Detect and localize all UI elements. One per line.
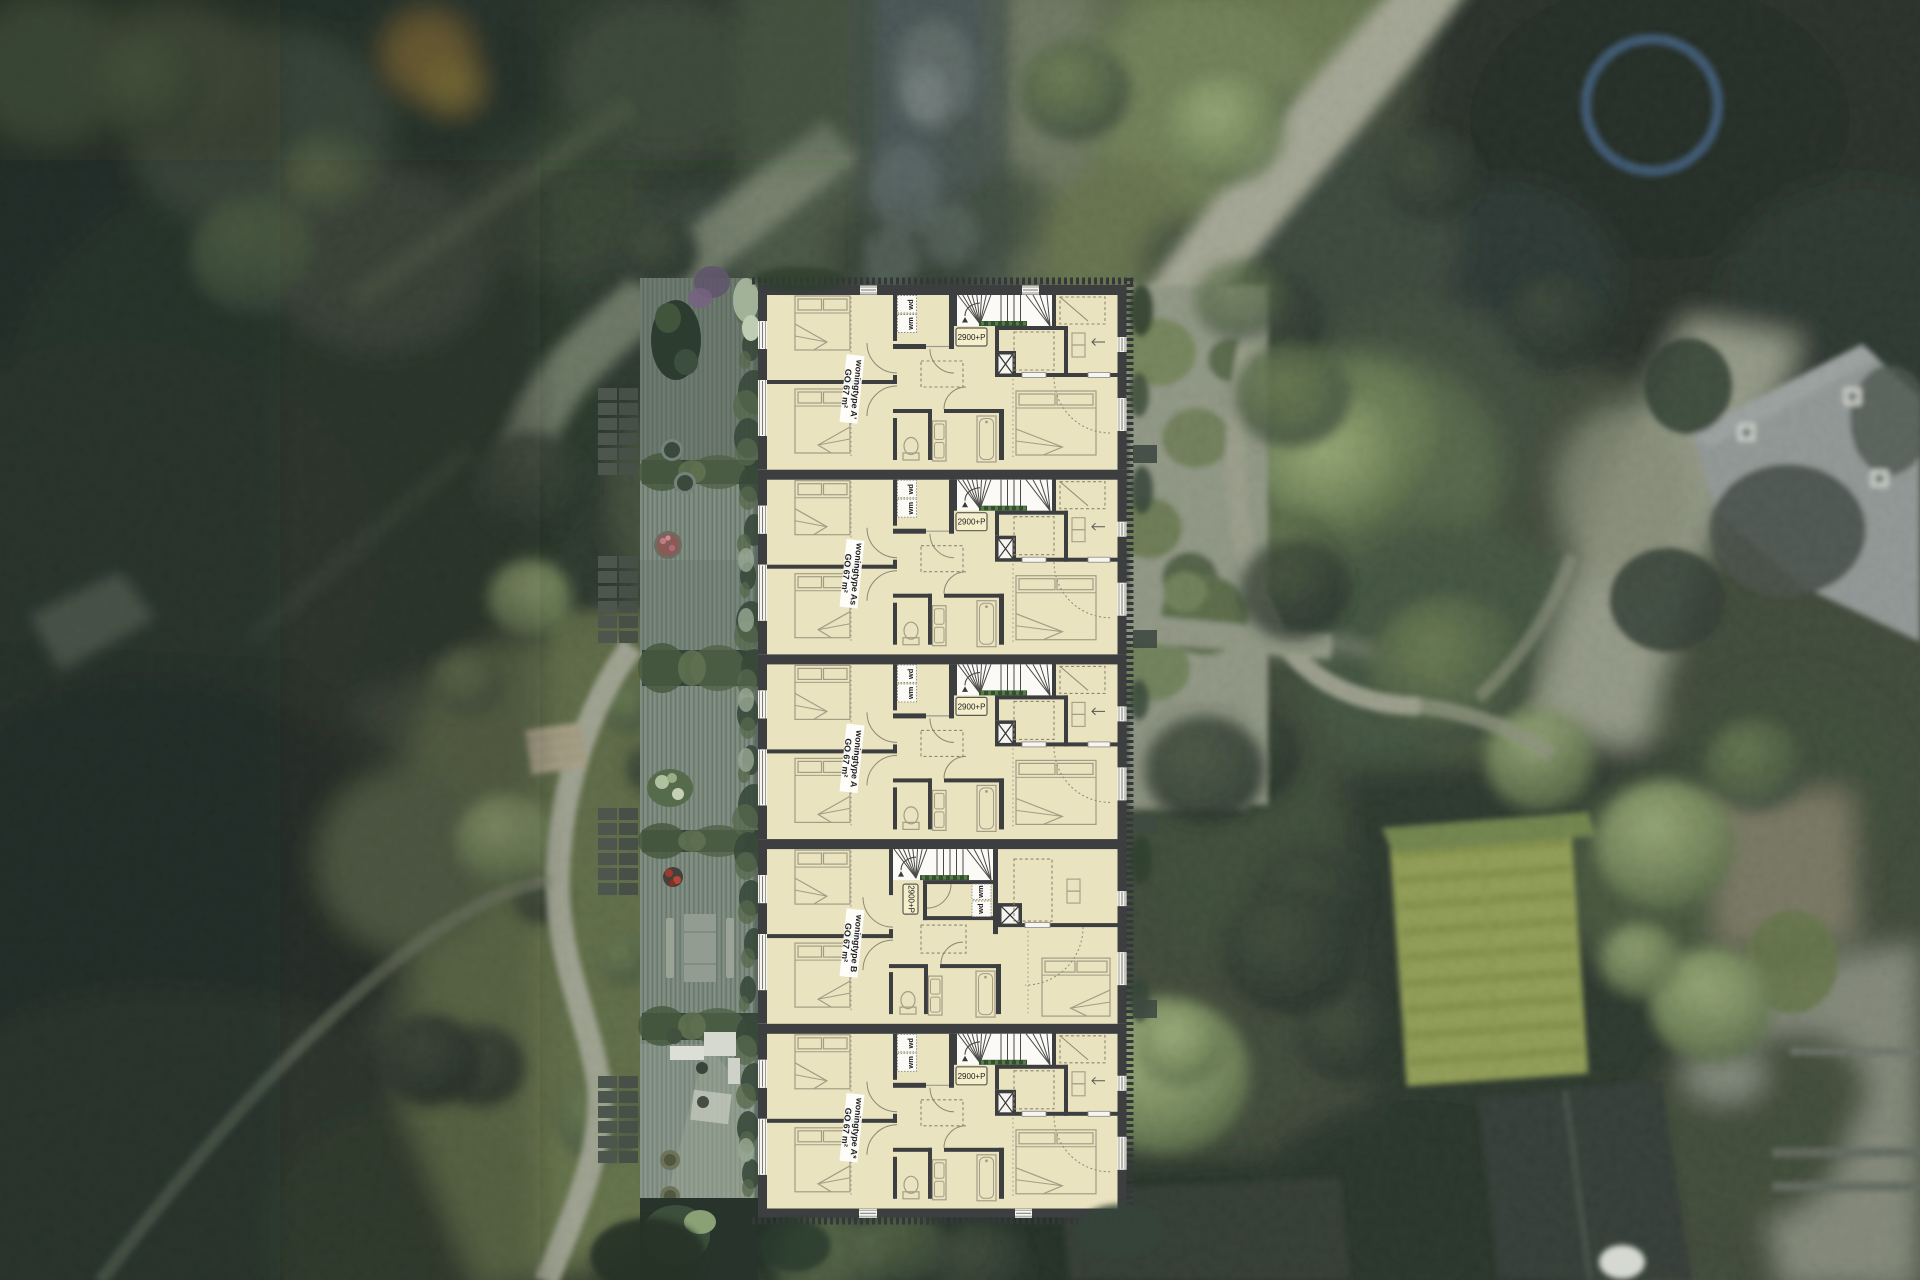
svg-text:wd: wd (906, 668, 915, 680)
svg-text:wd: wd (906, 1038, 915, 1050)
svg-text:wm: wm (906, 686, 915, 700)
svg-text:wm: wm (906, 502, 915, 516)
svg-text:wm: wm (906, 1056, 915, 1070)
svg-text:2900+P: 2900+P (958, 1072, 986, 1081)
svg-text:wm: wm (906, 317, 915, 331)
svg-text:2900+P: 2900+P (906, 885, 915, 913)
svg-text:wd: wd (906, 484, 915, 496)
svg-text:2900+P: 2900+P (958, 518, 986, 527)
svg-text:wd: wd (906, 299, 915, 311)
svg-text:wm: wm (976, 885, 985, 899)
svg-text:2900+P: 2900+P (958, 702, 986, 711)
svg-text:2900+P: 2900+P (958, 333, 986, 342)
svg-text:wd: wd (976, 903, 985, 915)
